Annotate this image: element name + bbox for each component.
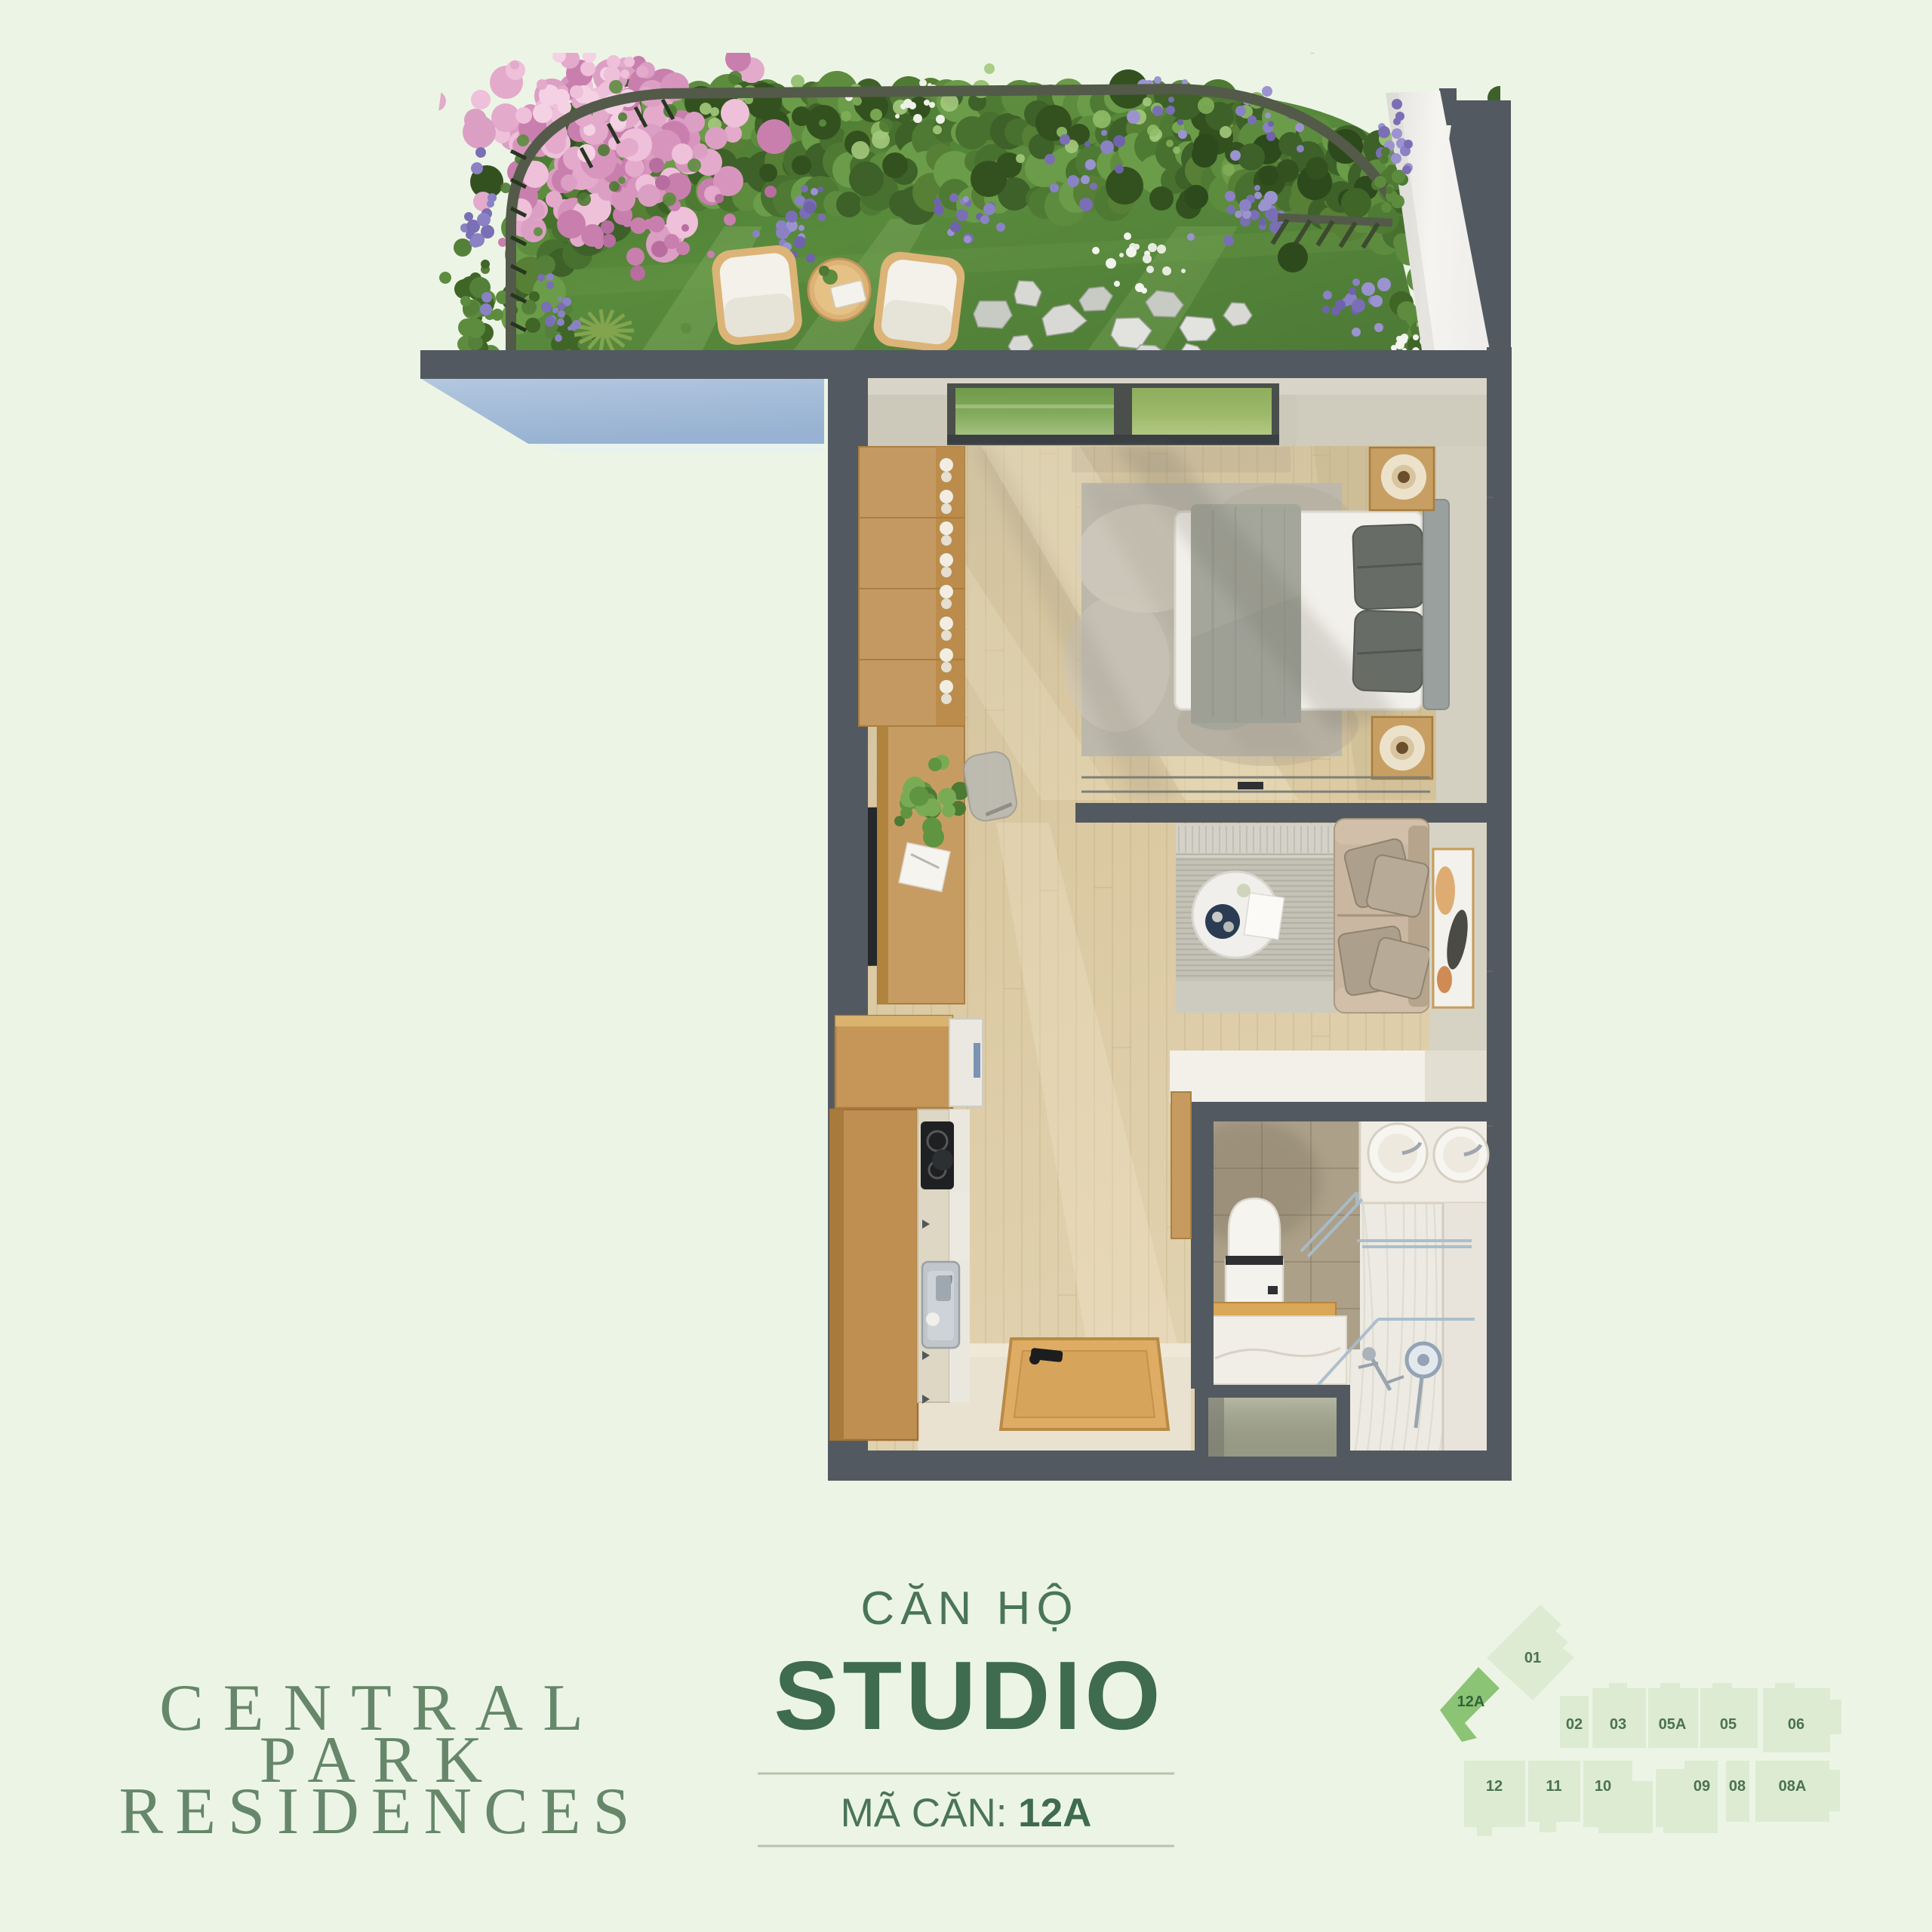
svg-text:12: 12 <box>1486 1778 1503 1795</box>
svg-text:12A: 12A <box>1457 1694 1485 1710</box>
svg-text:05: 05 <box>1720 1716 1737 1733</box>
svg-text:02: 02 <box>1566 1716 1583 1733</box>
svg-text:01: 01 <box>1524 1650 1541 1666</box>
svg-text:10: 10 <box>1595 1778 1611 1795</box>
svg-text:RESIDENCES: RESIDENCES <box>119 1775 642 1848</box>
svg-text:09: 09 <box>1694 1778 1710 1795</box>
svg-text:03: 03 <box>1610 1716 1626 1733</box>
svg-text:MÃ CĂN: 12A: MÃ CĂN: 12A <box>841 1791 1092 1835</box>
svg-text:STUDIO: STUDIO <box>774 1641 1164 1750</box>
svg-text:11: 11 <box>1546 1778 1561 1795</box>
svg-text:08A: 08A <box>1779 1778 1807 1795</box>
svg-text:06: 06 <box>1788 1716 1804 1733</box>
svg-text:08: 08 <box>1729 1778 1746 1795</box>
svg-text:05A: 05A <box>1659 1716 1687 1733</box>
svg-text:CĂN HỘ: CĂN HỘ <box>860 1583 1078 1635</box>
